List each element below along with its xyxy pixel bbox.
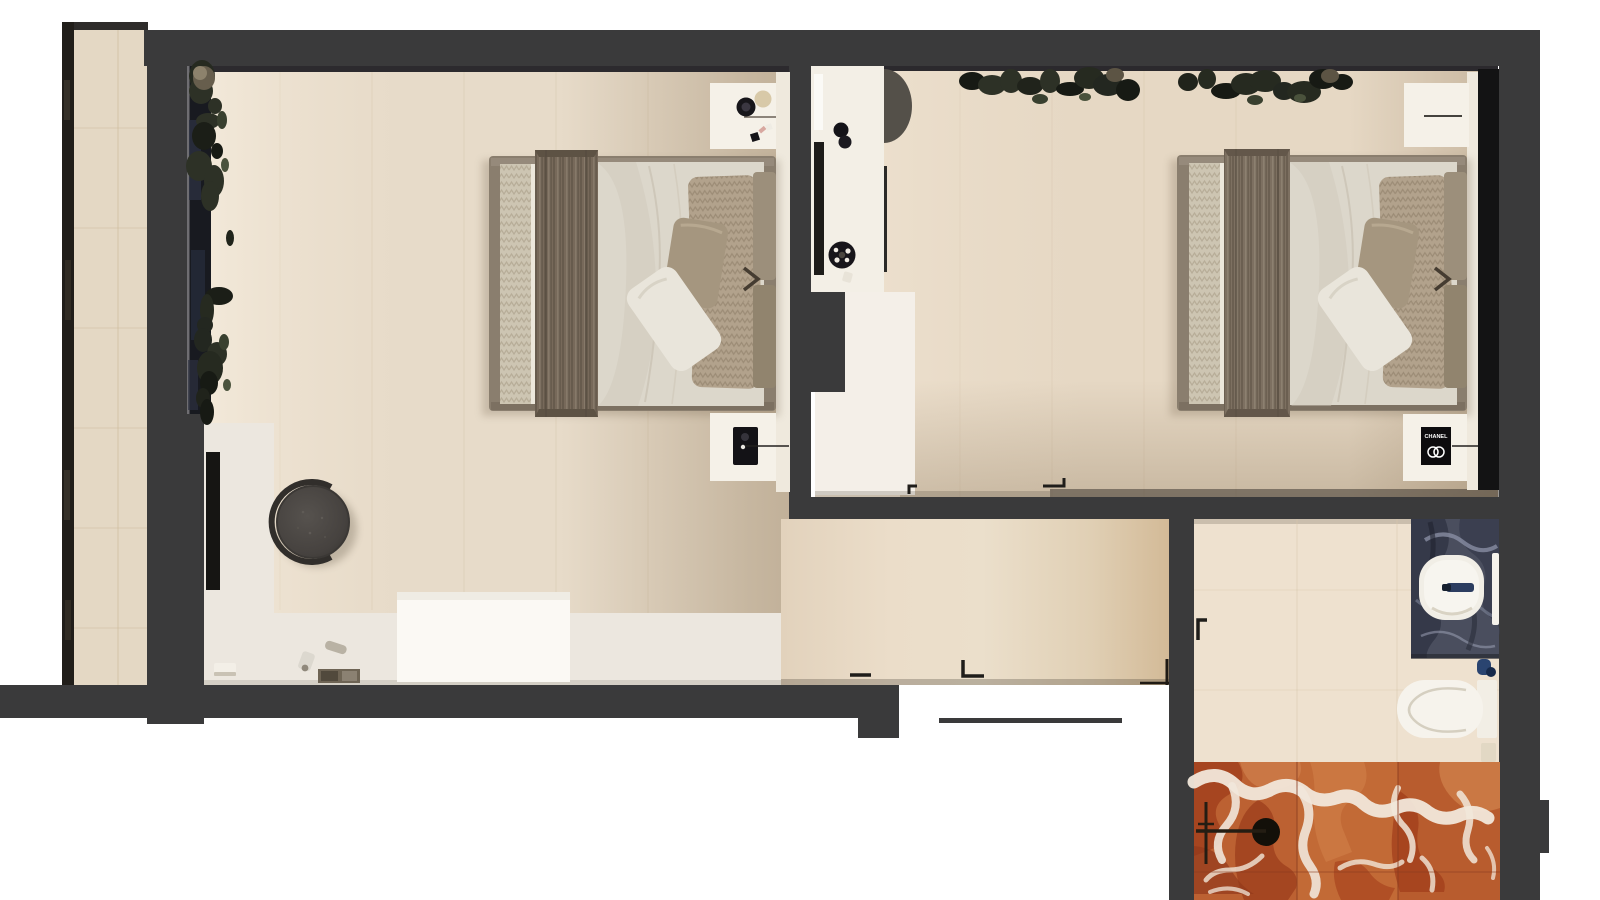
svg-text:CHANEL: CHANEL: [1425, 434, 1449, 440]
